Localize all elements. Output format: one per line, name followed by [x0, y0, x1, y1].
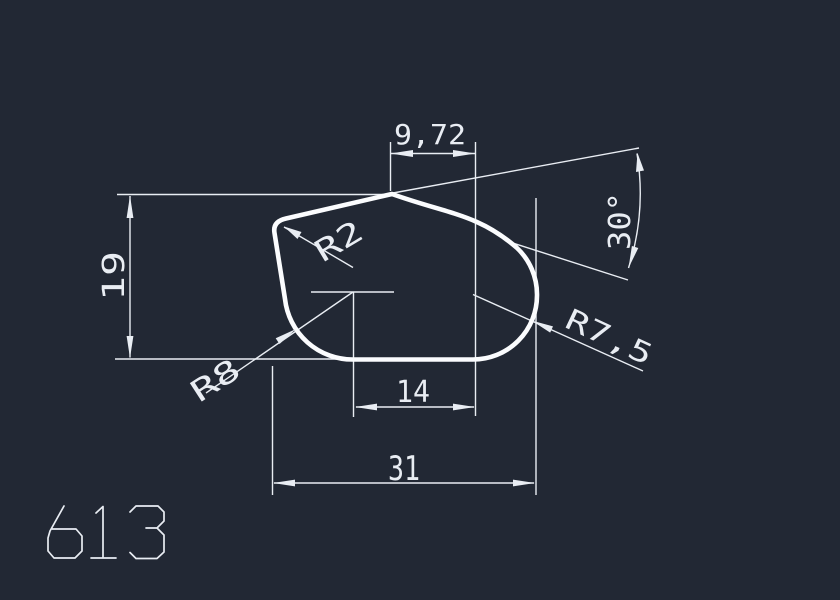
cad-viewport: 9,72 30° 19 R2 R8 R7,5 14 31 613 — [0, 0, 840, 600]
dim-text-inner-width: 14 — [396, 375, 430, 410]
dim-text-angle: 30° — [603, 192, 638, 250]
dim-text-height: 19 — [97, 251, 132, 301]
cad-drawing: 9,72 30° 19 R2 R8 R7,5 14 31 613 — [0, 0, 840, 600]
dim-text-top-width: 9,72 — [394, 118, 466, 151]
dim-text-overall-width: 31 — [388, 449, 420, 489]
